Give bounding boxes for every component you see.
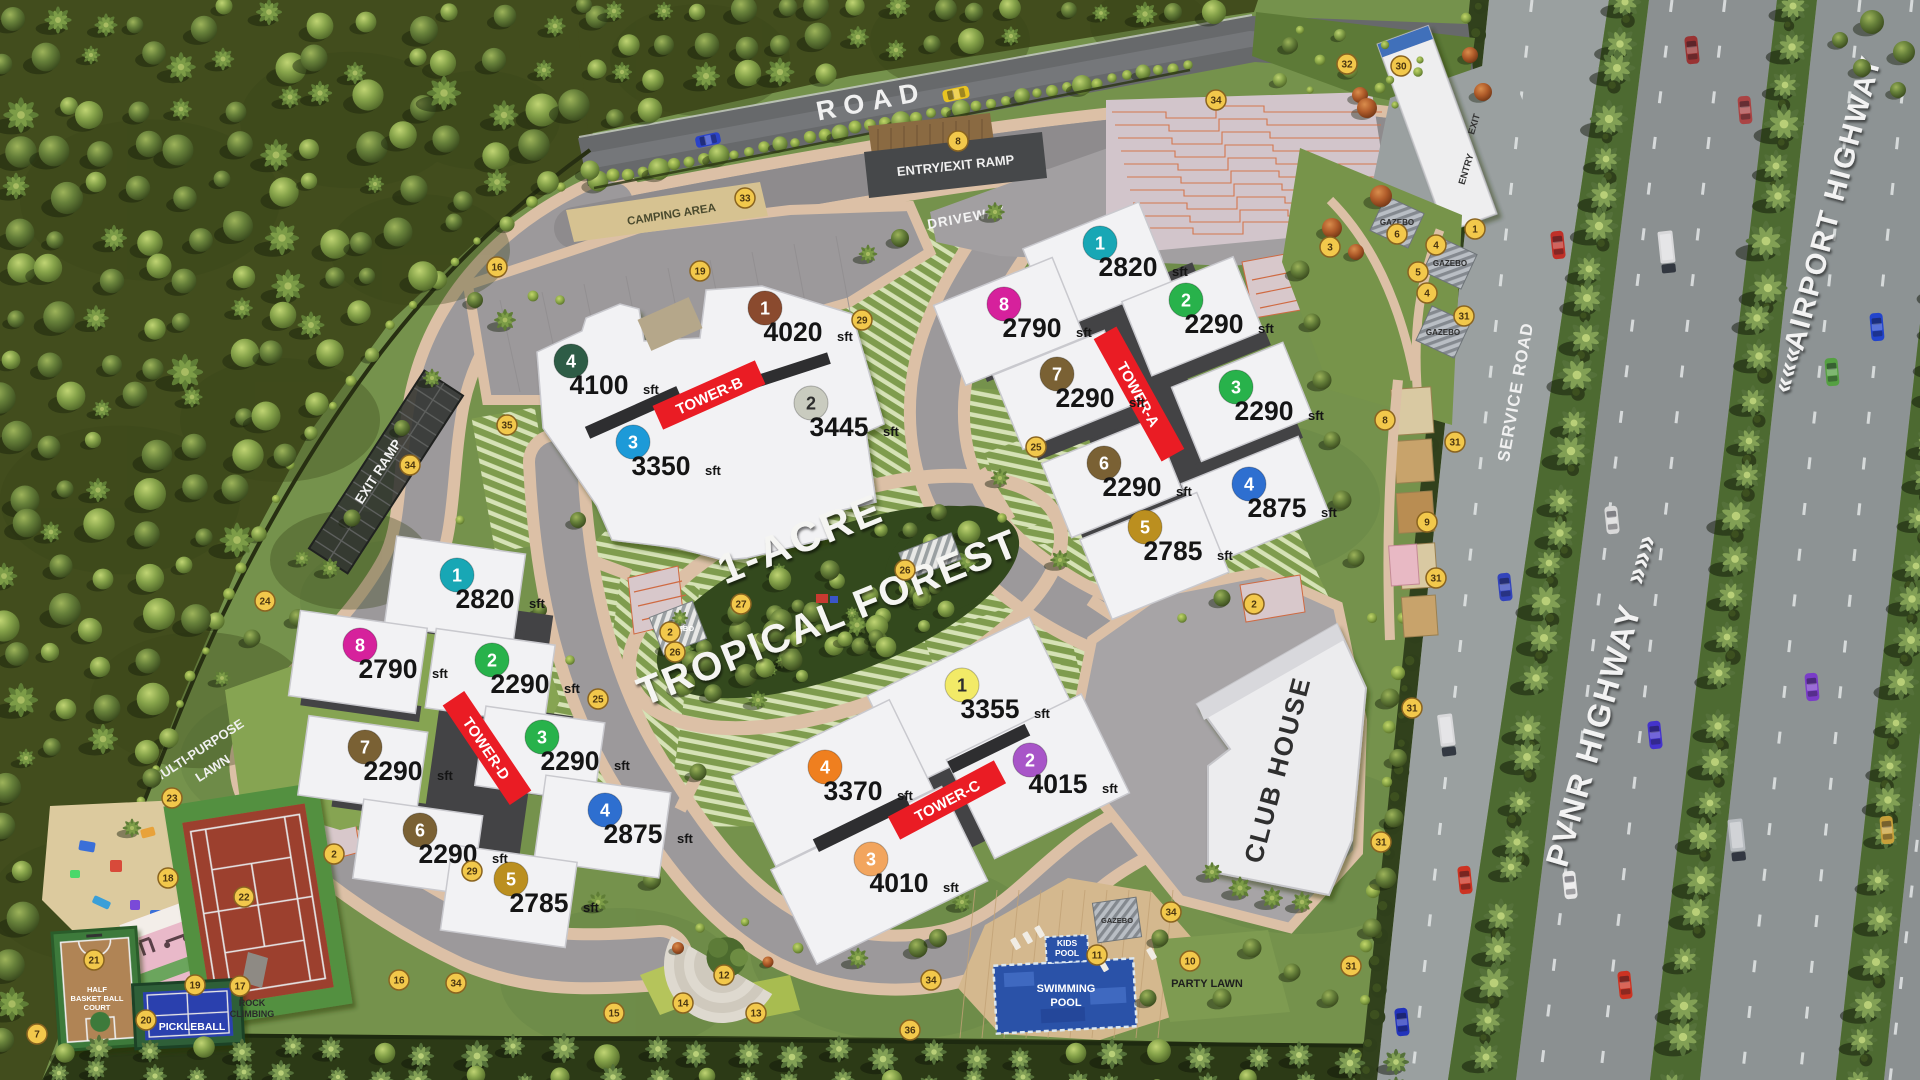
svg-text:sft: sft — [1076, 325, 1093, 340]
svg-text:POOL: POOL — [1050, 997, 1081, 1009]
svg-text:CLIMBING: CLIMBING — [230, 1009, 275, 1019]
svg-text:PARTY LAWN: PARTY LAWN — [1171, 978, 1243, 990]
svg-text:3370: 3370 — [824, 776, 883, 806]
svg-text:sft: sft — [437, 768, 454, 783]
svg-text:4010: 4010 — [870, 868, 929, 898]
svg-text:BASKET BALL: BASKET BALL — [71, 994, 124, 1003]
svg-text:4020: 4020 — [764, 317, 823, 347]
svg-text:2785: 2785 — [510, 888, 569, 918]
svg-text:35: 35 — [501, 421, 513, 432]
svg-text:31: 31 — [1345, 962, 1357, 973]
svg-text:HALF: HALF — [87, 985, 107, 994]
svg-text:4: 4 — [820, 758, 830, 778]
svg-text:GAZEBO: GAZEBO — [1433, 259, 1467, 268]
svg-text:4015: 4015 — [1029, 769, 1088, 799]
svg-text:2: 2 — [487, 651, 497, 671]
svg-text:sft: sft — [1217, 548, 1234, 563]
svg-text:21: 21 — [88, 956, 100, 967]
svg-text:24: 24 — [259, 597, 271, 608]
svg-text:1: 1 — [452, 566, 462, 586]
svg-text:26: 26 — [669, 648, 681, 659]
svg-text:34: 34 — [1165, 908, 1177, 919]
svg-text:sft: sft — [943, 880, 960, 895]
svg-text:2: 2 — [1181, 291, 1191, 311]
svg-text:5: 5 — [506, 870, 516, 890]
svg-text:ROCK: ROCK — [239, 998, 266, 1008]
svg-text:33: 33 — [739, 194, 751, 205]
svg-text:6: 6 — [415, 821, 425, 841]
svg-text:2820: 2820 — [456, 584, 515, 614]
svg-text:34: 34 — [1210, 96, 1222, 107]
svg-text:17: 17 — [234, 982, 246, 993]
svg-text:2290: 2290 — [1103, 472, 1162, 502]
svg-text:25: 25 — [592, 695, 604, 706]
svg-text:3: 3 — [866, 850, 876, 870]
svg-text:22: 22 — [238, 893, 250, 904]
svg-text:sft: sft — [897, 788, 914, 803]
svg-text:2290: 2290 — [491, 669, 550, 699]
svg-text:2790: 2790 — [1003, 313, 1062, 343]
svg-text:COURT: COURT — [84, 1003, 111, 1012]
svg-text:sft: sft — [837, 329, 854, 344]
svg-text:sft: sft — [1102, 781, 1119, 796]
svg-text:4: 4 — [1433, 241, 1439, 252]
svg-text:32: 32 — [1341, 60, 1353, 71]
svg-text:sft: sft — [1308, 408, 1325, 423]
svg-text:4: 4 — [600, 801, 610, 821]
svg-text:3350: 3350 — [632, 451, 691, 481]
svg-text:5: 5 — [1415, 268, 1421, 279]
svg-text:sft: sft — [564, 681, 581, 696]
svg-text:sft: sft — [1034, 706, 1051, 721]
svg-text:14: 14 — [677, 999, 689, 1010]
svg-text:11: 11 — [1092, 951, 1103, 962]
svg-text:31: 31 — [1406, 704, 1418, 715]
svg-text:4: 4 — [1244, 475, 1254, 495]
svg-text:7: 7 — [360, 738, 370, 758]
svg-text:2: 2 — [1025, 751, 1035, 771]
svg-text:8: 8 — [1382, 416, 1388, 427]
svg-text:2290: 2290 — [541, 746, 600, 776]
svg-text:2785: 2785 — [1144, 536, 1203, 566]
svg-text:1: 1 — [957, 676, 967, 696]
svg-text:8: 8 — [955, 137, 961, 148]
svg-text:19: 19 — [694, 267, 706, 278]
svg-text:23: 23 — [166, 794, 178, 805]
svg-text:3: 3 — [537, 728, 547, 748]
svg-text:sft: sft — [1176, 484, 1193, 499]
svg-text:7: 7 — [1052, 365, 1062, 385]
svg-text:1: 1 — [1095, 234, 1105, 254]
svg-text:13: 13 — [750, 1009, 762, 1020]
svg-text:27: 27 — [735, 600, 747, 611]
svg-text:2290: 2290 — [1056, 383, 1115, 413]
svg-text:4: 4 — [566, 352, 576, 372]
svg-text:34: 34 — [925, 976, 937, 987]
svg-text:5: 5 — [1140, 518, 1150, 538]
svg-text:3355: 3355 — [961, 694, 1020, 724]
svg-text:31: 31 — [1375, 838, 1387, 849]
svg-text:16: 16 — [491, 263, 503, 274]
svg-text:3: 3 — [1231, 378, 1241, 398]
svg-text:2: 2 — [806, 394, 816, 414]
svg-text:KIDS: KIDS — [1057, 938, 1078, 948]
svg-text:34: 34 — [404, 461, 416, 472]
svg-text:29: 29 — [466, 867, 478, 878]
svg-text:1: 1 — [760, 299, 770, 319]
svg-text:3445: 3445 — [810, 412, 869, 442]
svg-text:2875: 2875 — [1248, 493, 1307, 523]
svg-text:sft: sft — [432, 666, 449, 681]
svg-text:31: 31 — [1430, 574, 1442, 585]
svg-text:10: 10 — [1184, 957, 1196, 968]
svg-text:15: 15 — [608, 1009, 620, 1020]
svg-text:sft: sft — [1321, 505, 1338, 520]
svg-text:2790: 2790 — [359, 654, 418, 684]
svg-text:6: 6 — [1394, 230, 1400, 241]
svg-text:36: 36 — [904, 1026, 916, 1037]
svg-text:sft: sft — [643, 382, 660, 397]
svg-text:GAZEBO: GAZEBO — [1101, 916, 1133, 925]
svg-text:2290: 2290 — [1185, 309, 1244, 339]
svg-text:4100: 4100 — [570, 370, 629, 400]
svg-text:7: 7 — [34, 1030, 40, 1041]
svg-text:sft: sft — [677, 831, 694, 846]
svg-text:sft: sft — [614, 758, 631, 773]
svg-text:POOL: POOL — [1055, 948, 1079, 958]
svg-text:3: 3 — [1327, 243, 1333, 254]
svg-text:4: 4 — [1424, 289, 1430, 300]
svg-text:34: 34 — [450, 979, 462, 990]
svg-text:2: 2 — [1251, 600, 1257, 611]
svg-text:sft: sft — [705, 463, 722, 478]
svg-text:sft: sft — [583, 900, 600, 915]
svg-text:SWIMMING: SWIMMING — [1037, 983, 1096, 995]
svg-text:2820: 2820 — [1099, 252, 1158, 282]
svg-text:2: 2 — [667, 628, 673, 639]
svg-text:6: 6 — [1099, 454, 1109, 474]
svg-text:sft: sft — [1129, 395, 1146, 410]
svg-text:30: 30 — [1395, 62, 1407, 73]
svg-text:16: 16 — [393, 976, 405, 987]
svg-text:1: 1 — [1472, 225, 1478, 236]
svg-text:GAZEBO: GAZEBO — [1426, 328, 1460, 337]
svg-text:20: 20 — [140, 1016, 152, 1027]
svg-text:29: 29 — [856, 316, 868, 327]
svg-text:25: 25 — [1030, 443, 1042, 454]
svg-text:2290: 2290 — [1235, 396, 1294, 426]
svg-text:sft: sft — [1258, 321, 1275, 336]
svg-text:31: 31 — [1449, 438, 1461, 449]
svg-text:26: 26 — [899, 566, 911, 577]
svg-text:2: 2 — [331, 850, 337, 861]
svg-text:sft: sft — [883, 424, 900, 439]
svg-text:9: 9 — [1424, 518, 1430, 529]
svg-text:PICKLEBALL: PICKLEBALL — [159, 1021, 226, 1033]
svg-text:31: 31 — [1458, 312, 1470, 323]
svg-text:12: 12 — [718, 971, 730, 982]
svg-text:8: 8 — [999, 295, 1009, 315]
svg-text:3: 3 — [628, 433, 638, 453]
svg-text:19: 19 — [189, 981, 201, 992]
svg-text:sft: sft — [529, 596, 546, 611]
svg-text:2290: 2290 — [364, 756, 423, 786]
svg-text:8: 8 — [355, 636, 365, 656]
svg-text:sft: sft — [1172, 264, 1189, 279]
svg-text:2875: 2875 — [604, 819, 663, 849]
svg-text:18: 18 — [162, 874, 174, 885]
